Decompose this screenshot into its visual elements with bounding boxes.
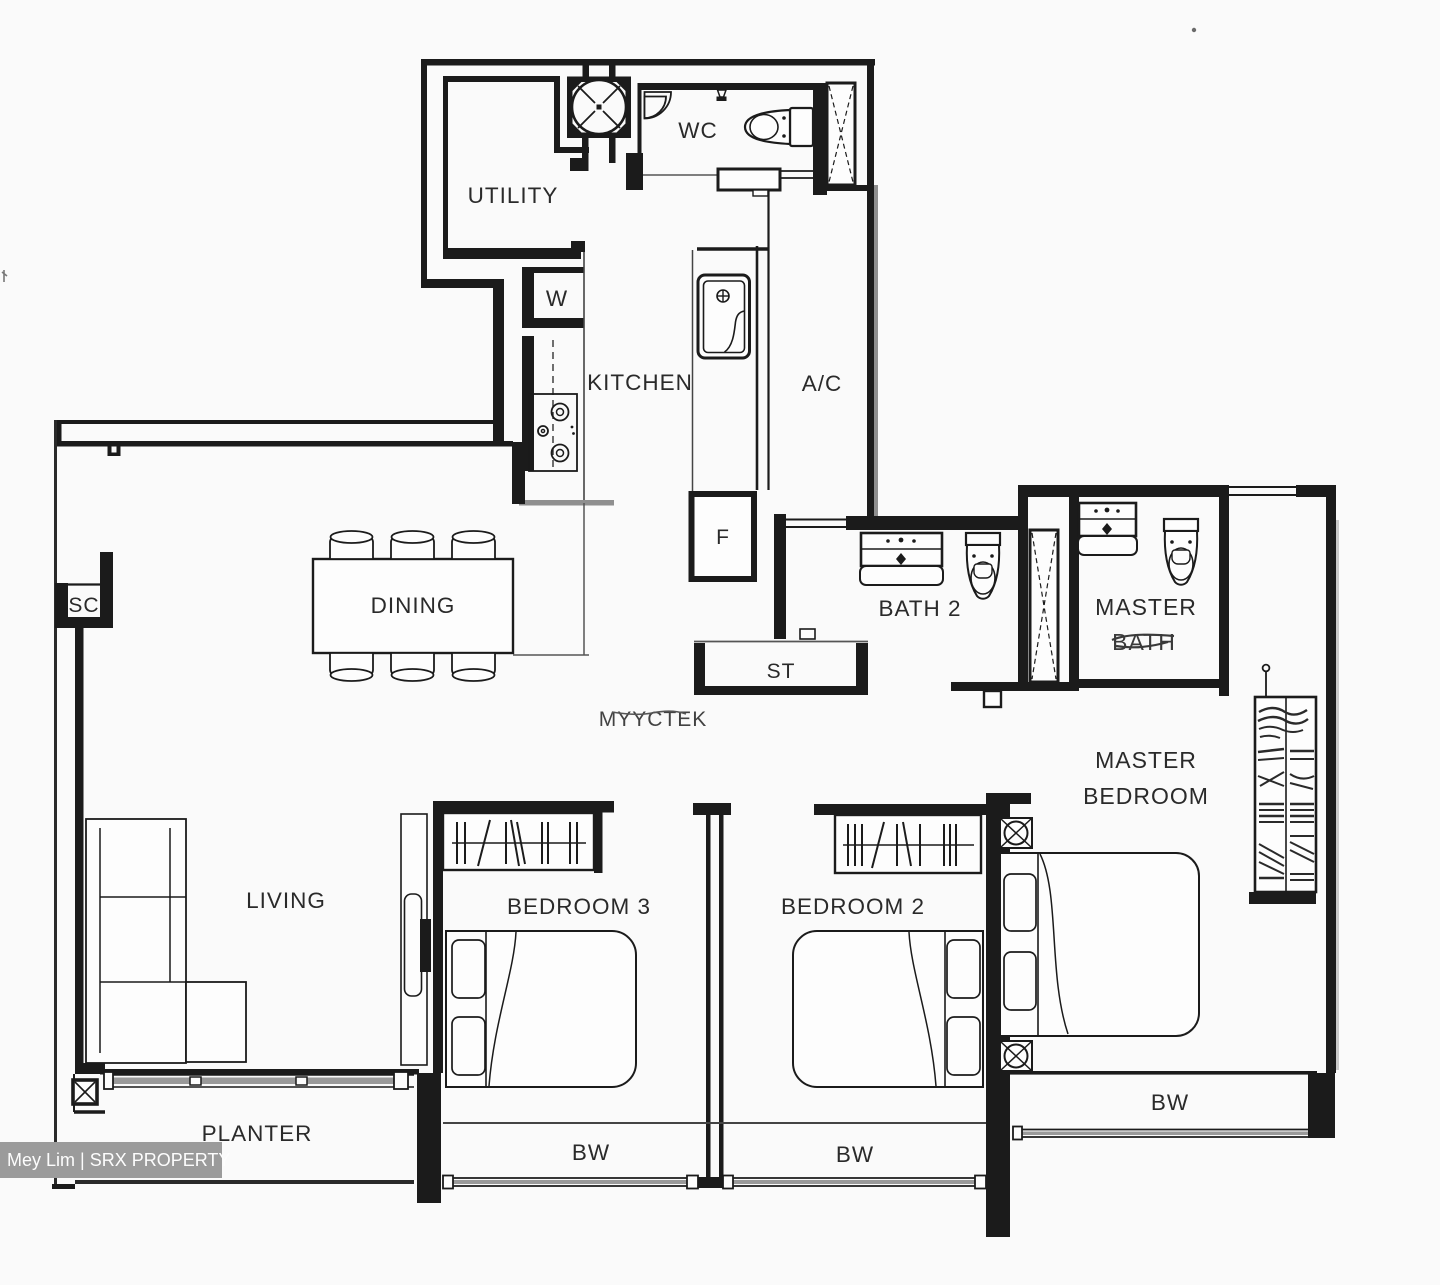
svg-text:ST: ST xyxy=(767,660,796,683)
svg-text:BW: BW xyxy=(836,1142,874,1167)
svg-text:WC: WC xyxy=(678,118,718,143)
svg-text:BEDROOM 2: BEDROOM 2 xyxy=(781,894,925,919)
svg-text:MYYCTEK: MYYCTEK xyxy=(599,708,708,731)
svg-text:BATH 2: BATH 2 xyxy=(878,596,961,621)
svg-text:UTILITY: UTILITY xyxy=(468,183,559,208)
svg-text:LIVING: LIVING xyxy=(246,888,326,913)
svg-text:BW: BW xyxy=(572,1140,610,1165)
svg-text:BEDROOM: BEDROOM xyxy=(1083,783,1209,809)
svg-text:SC: SC xyxy=(68,594,99,617)
svg-text:KITCHEN: KITCHEN xyxy=(587,370,693,395)
svg-text:BEDROOM 3: BEDROOM 3 xyxy=(507,894,651,919)
svg-text:F: F xyxy=(716,526,730,549)
svg-text:Mey Lim | SRX PROPERTY: Mey Lim | SRX PROPERTY xyxy=(7,1150,230,1170)
svg-text:A/C: A/C xyxy=(802,371,843,396)
svg-text:MASTER: MASTER xyxy=(1095,747,1197,773)
svg-text:W: W xyxy=(546,286,568,311)
svg-text:BW: BW xyxy=(1151,1090,1189,1115)
svg-text:MASTER: MASTER xyxy=(1095,594,1197,620)
svg-text:DINING: DINING xyxy=(371,593,456,618)
